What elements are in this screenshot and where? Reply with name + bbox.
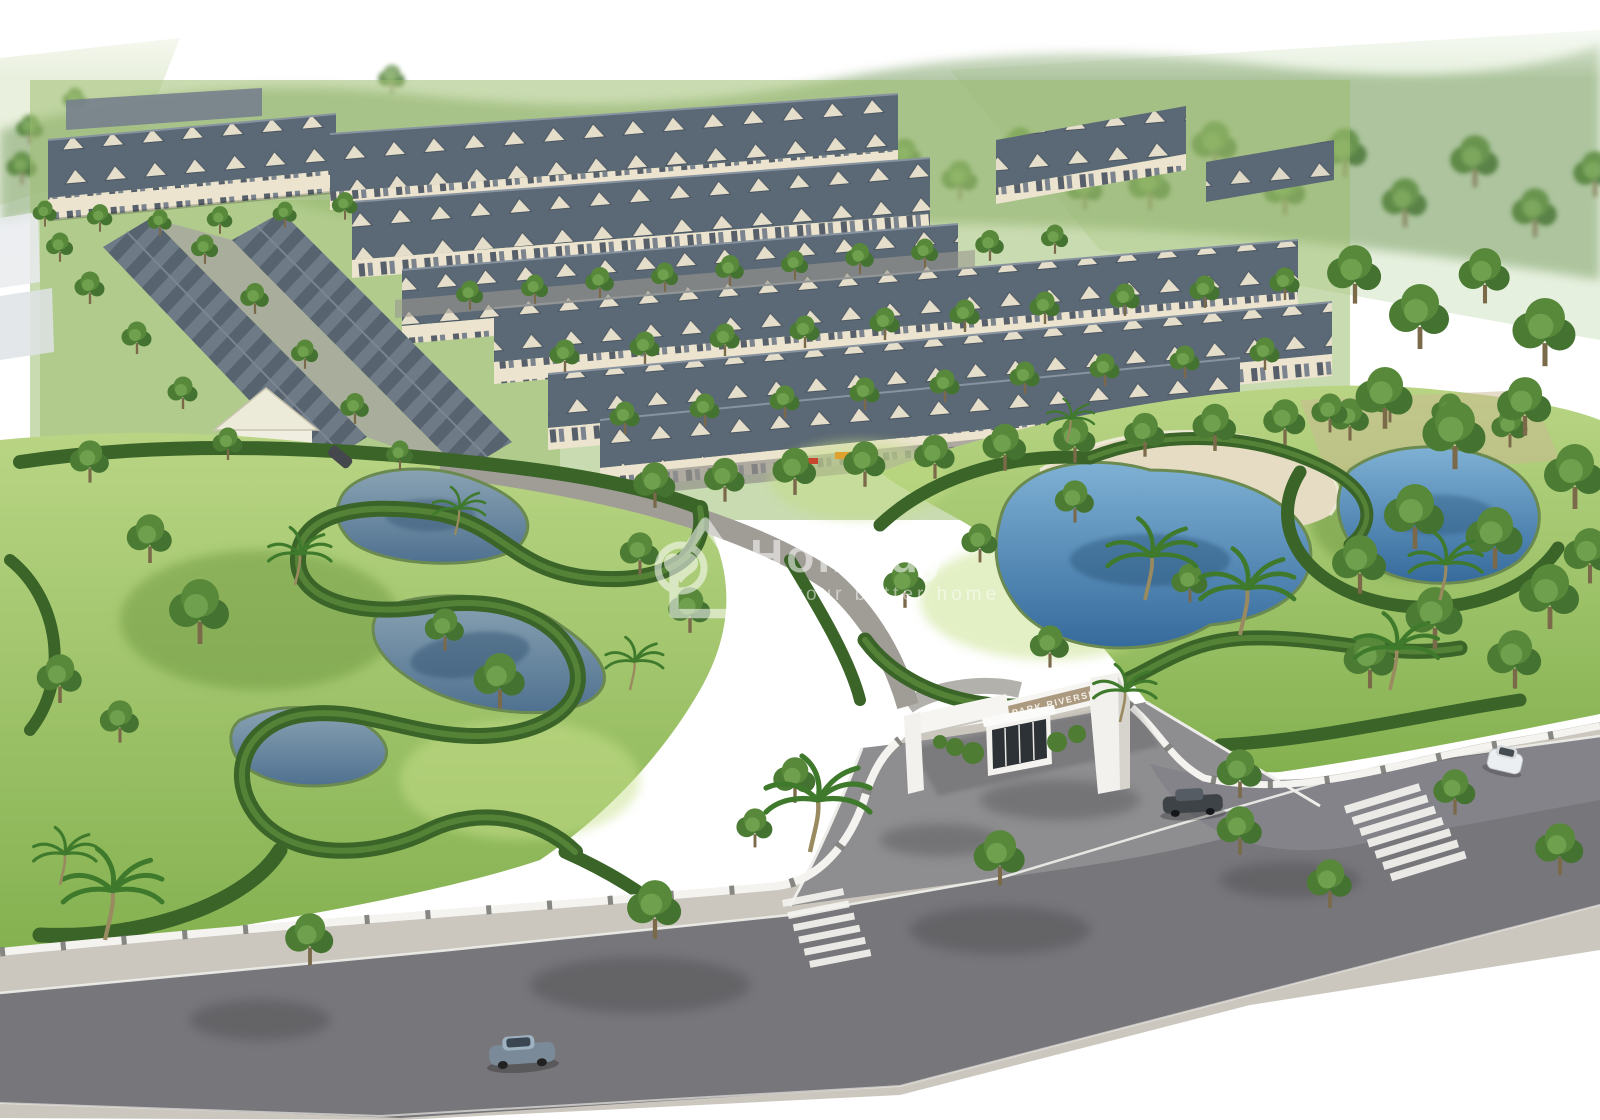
window-mullion	[1019, 725, 1020, 763]
window-mullion	[1033, 722, 1034, 760]
homedy-brand-text: Homedy	[750, 530, 949, 582]
aerial-render-scene: PARK RIVERSIDE	[0, 0, 1600, 1120]
scene-canvas: PARK RIVERSIDE	[0, 0, 1600, 1120]
sky-fade	[0, 0, 1600, 80]
homedy-tagline-text: Be your better home	[752, 584, 1000, 605]
window-mullion	[1005, 728, 1006, 766]
